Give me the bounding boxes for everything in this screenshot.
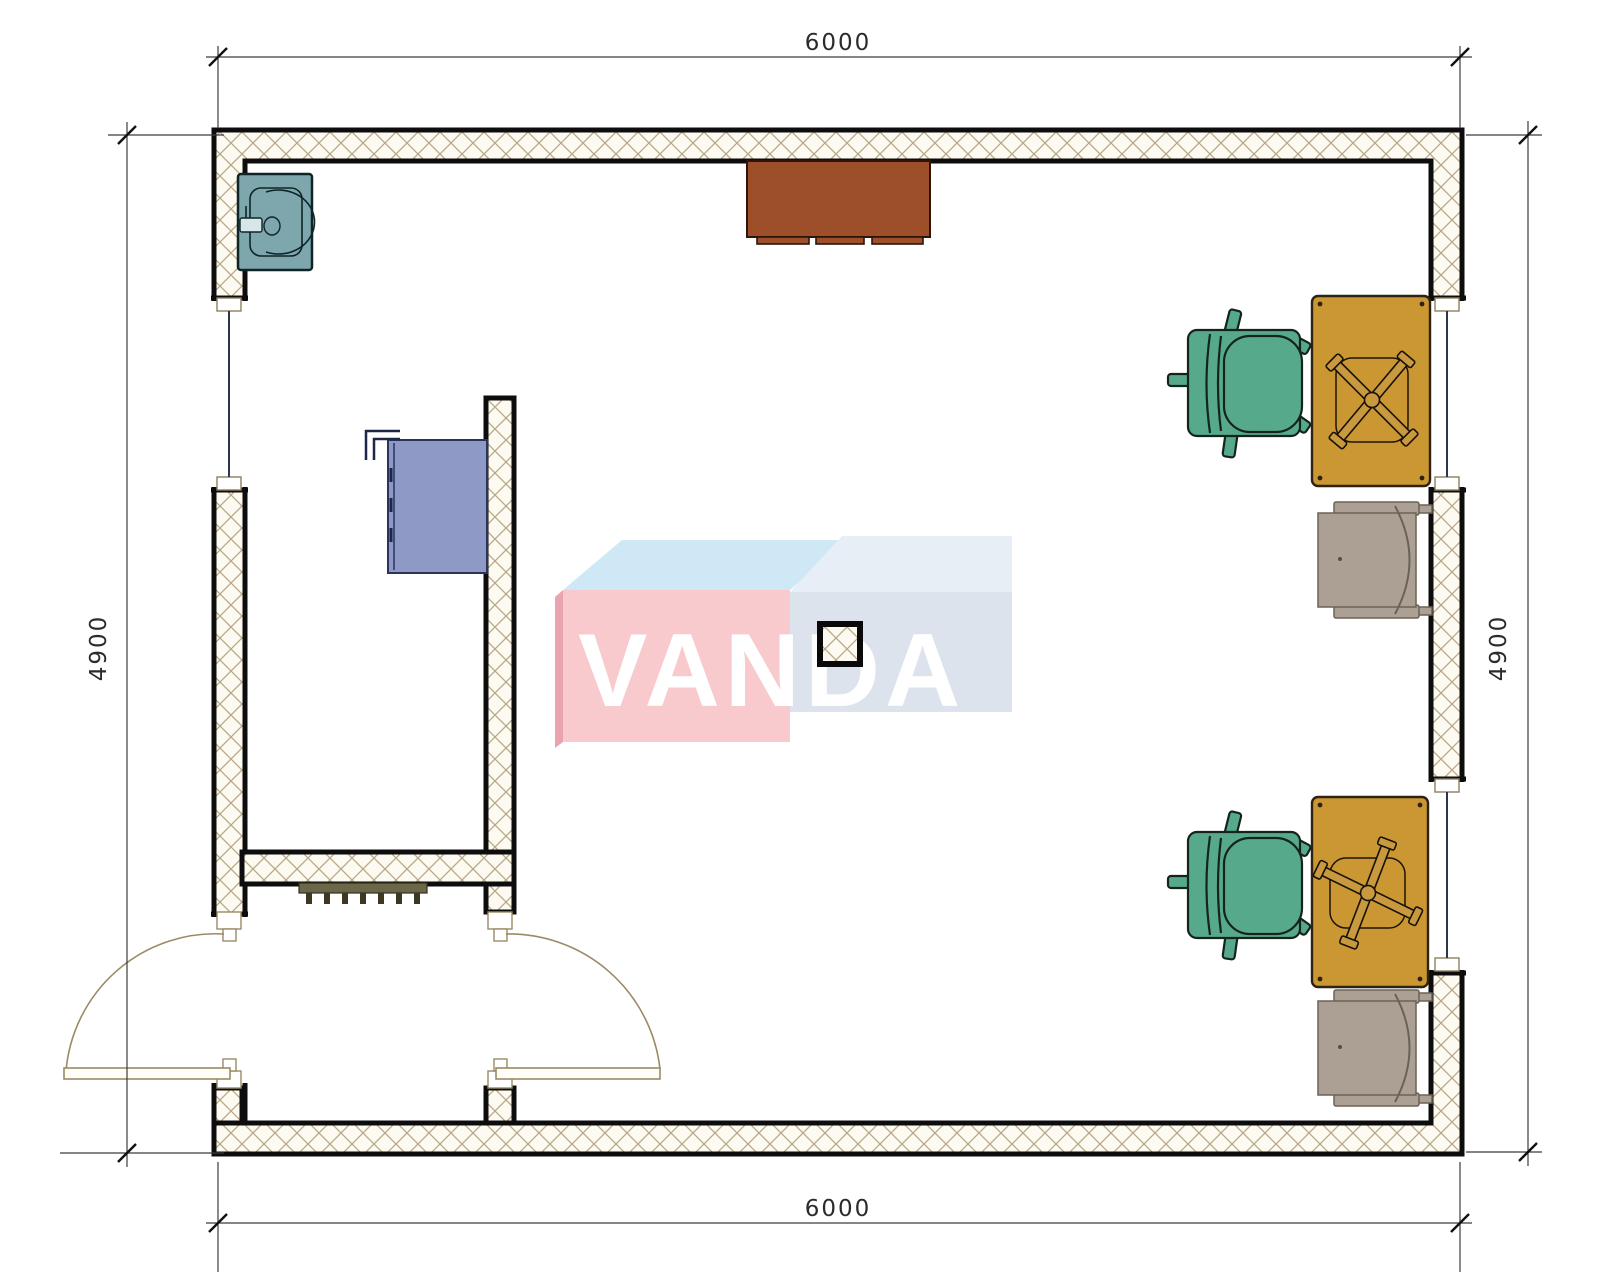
door-jamb-sills: [217, 912, 512, 1088]
door-stub-wall-right: [486, 1088, 514, 1123]
floor-plan-canvas: VANDA: [0, 0, 1600, 1280]
side-chair-1: [1318, 502, 1432, 618]
dimension-left-label: 4900: [86, 615, 112, 682]
dimension-right-label: 4900: [1486, 615, 1512, 682]
door-swing-arc-right: [506, 934, 660, 1069]
countertop-cabinet: [747, 161, 930, 244]
radiator: [299, 883, 427, 904]
door-leaf-right: [496, 1068, 660, 1079]
office-chair-2: [1168, 811, 1311, 960]
watermark-text: VANDA: [578, 613, 965, 729]
dimension-top: 6000: [206, 30, 1472, 128]
cabinet-brown-body: [747, 161, 930, 237]
office-chair-1: [1168, 309, 1311, 458]
wall-cabinet: [366, 431, 487, 573]
radiator-fins: [306, 893, 420, 904]
watermark-pink-left-edge: [555, 590, 563, 748]
double-entry-door: [64, 912, 660, 1088]
interior-wall-vertical: [486, 398, 514, 912]
cabinet-brown-feet: [757, 237, 923, 244]
dimension-bottom-label: 6000: [805, 1196, 872, 1222]
door-swing-arc-left: [66, 934, 224, 1071]
desk-2: [1307, 797, 1428, 987]
sink-faucet: [240, 218, 262, 232]
interior-wall-horizontal: [242, 852, 514, 884]
dimension-right: 4900: [1466, 121, 1542, 1166]
cabinet-blue-body: [388, 440, 487, 573]
column: [820, 624, 860, 664]
dimension-bottom: 6000: [206, 1162, 1472, 1272]
desk-1-top: [1312, 296, 1430, 486]
radiator-bar: [299, 883, 427, 893]
floor-plan-svg: VANDA: [0, 0, 1600, 1280]
desk-1: [1312, 296, 1430, 486]
door-leaf-left: [64, 1068, 230, 1079]
side-chair-2: [1318, 990, 1432, 1106]
sink: [238, 174, 315, 270]
door-stub-wall-left: [214, 1088, 242, 1123]
dimension-top-label: 6000: [805, 30, 872, 56]
watermark-logo: VANDA: [555, 536, 1012, 748]
